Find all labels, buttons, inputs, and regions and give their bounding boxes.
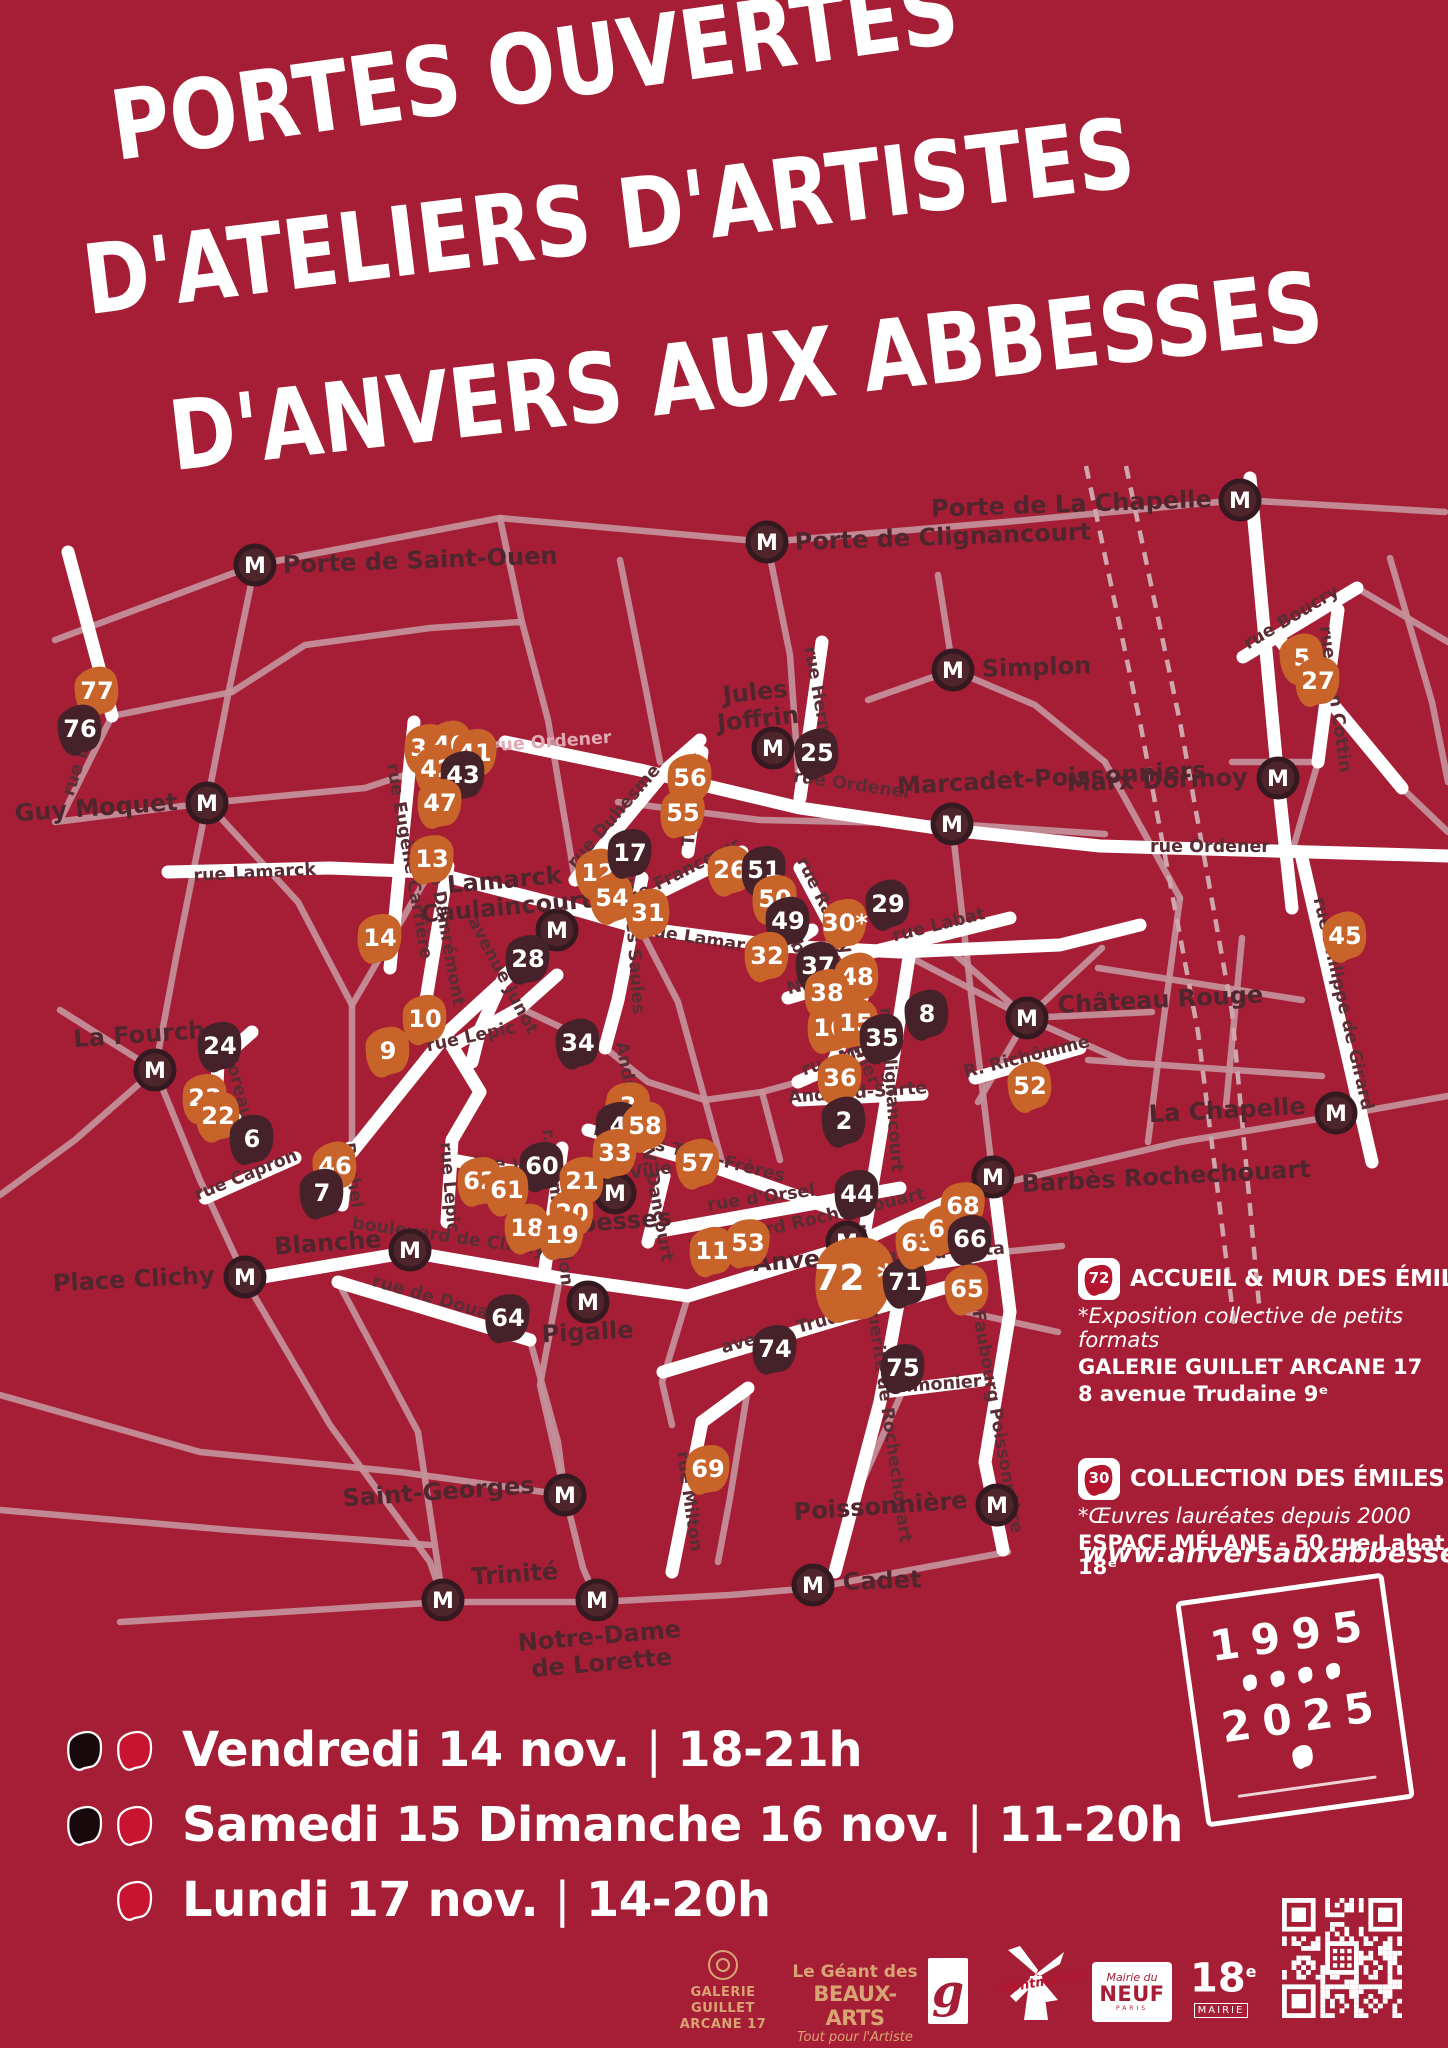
street-minor	[640, 928, 705, 1100]
metro-m: M	[577, 1291, 599, 1316]
metro-m: M	[604, 1182, 626, 1207]
mairie18-number: 18	[1190, 1955, 1246, 2001]
svg-text:31: 31	[631, 899, 664, 927]
metro-m: M	[1229, 489, 1251, 514]
galerie-line2: GUILLET	[668, 2001, 778, 2017]
galerie-emblem-icon	[708, 1950, 738, 1980]
svg-text:8: 8	[919, 1000, 936, 1028]
metro-la-fourche: M	[136, 1051, 174, 1089]
metro-trinit-: M	[424, 1581, 462, 1619]
metro-m: M	[941, 813, 963, 838]
street-minor	[953, 670, 1105, 762]
metro-label: Marx Dormoy	[1066, 763, 1248, 797]
qr-code[interactable]	[1282, 1898, 1402, 2018]
map-marker-9: 9	[364, 1026, 410, 1079]
svg-text:56: 56	[673, 764, 706, 792]
metro-guy-moquet: M	[188, 784, 226, 822]
black-heart-icon	[64, 1801, 106, 1849]
svg-text:69: 69	[691, 1455, 724, 1483]
metro-m: M	[546, 919, 568, 944]
geant-g-icon: g	[928, 1958, 968, 2024]
metro-m: M	[244, 554, 266, 579]
metro-label: Pigalle	[541, 1316, 634, 1349]
metro-jules-joffrin: M	[754, 729, 792, 767]
svg-text:74: 74	[758, 1335, 791, 1363]
metro-m: M	[586, 1589, 608, 1614]
metro-label: Barbès Rochechouart	[1021, 1155, 1311, 1198]
red-heart-icon	[1295, 1663, 1316, 1686]
metro-m: M	[196, 792, 218, 817]
metro-m: M	[1016, 1007, 1038, 1032]
svg-text:30: 30	[1089, 1469, 1110, 1487]
metro-porte-de-la-chapelle: M	[1221, 481, 1259, 519]
poster: PORTES OUVERTES D'ATELIERS D'ARTISTES D'…	[0, 0, 1448, 2048]
logo-moulin-montmartre: Montmartre	[996, 1944, 1076, 2028]
metro-label: Poissonnière	[793, 1486, 969, 1526]
street-minor	[952, 824, 993, 1178]
logo-mairie-18e: 18e MAIRIE	[1190, 1952, 1252, 2018]
logo-geant-beaux-arts: Le Géant des BEAUX-ARTS Tout pour l'Arti…	[790, 1962, 920, 2045]
street-minor	[338, 1282, 443, 1600]
metro-simplon: M	[934, 651, 972, 689]
neuf-small: PARIS	[1116, 2005, 1148, 2012]
logo-galerie-guillet: GALERIE GUILLET ARCANE 17	[668, 1950, 778, 2033]
red-heart-icon	[1323, 1659, 1344, 1682]
metro-m: M	[399, 1239, 421, 1264]
svg-text:28: 28	[511, 945, 544, 973]
legend-accueil-line1: GALERIE GUILLET ARCANE 17	[1078, 1355, 1446, 1379]
red-heart-icon	[114, 1876, 156, 1924]
street-minor	[1402, 788, 1448, 832]
geant-line3: Tout pour l'Artiste	[790, 2030, 920, 2045]
street-minor	[620, 560, 660, 762]
svg-text:49: 49	[771, 907, 804, 935]
metro-la-chapelle: M	[1317, 1094, 1355, 1132]
svg-text:10: 10	[408, 1005, 441, 1033]
metro-label: Porte de La Chapelle	[931, 485, 1213, 523]
svg-text:13: 13	[415, 845, 448, 873]
street-label: rue Lamarck	[193, 860, 317, 886]
legend: 72 ACCUEIL & MUR DES ÉMILES *Exposition …	[1078, 1258, 1446, 1631]
svg-text:30*: 30*	[822, 909, 868, 937]
metro-place-clichy: M	[226, 1258, 264, 1296]
metro-label: Place Clichy	[52, 1261, 215, 1297]
legend-collection-marker-icon: 30	[1078, 1458, 1120, 1500]
svg-text:9: 9	[380, 1037, 397, 1065]
svg-text:19: 19	[545, 1221, 578, 1249]
metro-m: M	[554, 1484, 576, 1509]
metro-porte-de-clignancourt: M	[748, 523, 786, 561]
metro-label: Trinité	[470, 1557, 559, 1591]
neuf-big: NEUF	[1099, 1983, 1164, 2005]
street-minor	[0, 1070, 155, 1195]
legend-accueil-marker-icon: 72	[1078, 1258, 1120, 1300]
svg-text:57: 57	[681, 1149, 714, 1177]
metro-ch-teau-rouge: M	[1008, 999, 1046, 1037]
mairie18-label: MAIRIE	[1194, 2003, 1249, 2018]
red-heart-icon	[1240, 1671, 1261, 1694]
metro-m: M	[1325, 1102, 1347, 1127]
svg-text:61: 61	[490, 1176, 523, 1204]
svg-text:35: 35	[865, 1024, 898, 1052]
svg-text:27: 27	[1301, 667, 1334, 695]
svg-text:58: 58	[628, 1112, 661, 1140]
metro-m: M	[762, 737, 784, 762]
svg-text:76: 76	[63, 715, 96, 743]
svg-text:55: 55	[666, 799, 699, 827]
schedule-text: Samedi 15 Dimanche 16 nov.|11-20h	[182, 1797, 1183, 1853]
metro-m: M	[144, 1059, 166, 1084]
legend-accueil-title: ACCUEIL & MUR DES ÉMILES	[1130, 1266, 1448, 1292]
svg-text:47: 47	[423, 789, 456, 817]
street-label: rue Ordener	[1150, 837, 1270, 857]
svg-text:53: 53	[731, 1229, 764, 1257]
metro-m: M	[432, 1589, 454, 1614]
svg-text:6: 6	[244, 1125, 261, 1153]
svg-text:7: 7	[314, 1179, 331, 1207]
metro-cadet: M	[794, 1566, 832, 1604]
svg-text:32: 32	[750, 942, 783, 970]
metro-marx-dormoy: M	[1259, 759, 1297, 797]
legend-accueil-line2: 8 avenue Trudaine 9ᵉ	[1078, 1382, 1446, 1406]
svg-text:29: 29	[871, 890, 904, 918]
geant-line2: BEAUX-ARTS	[790, 1982, 920, 2030]
svg-text:60: 60	[525, 1152, 558, 1180]
red-heart-icon	[114, 1726, 156, 1774]
metro-porte-de-saint-ouen: M	[236, 546, 274, 584]
stamp-year-1995: 1995	[1195, 1600, 1377, 1673]
red-heart-icon	[1268, 1667, 1289, 1690]
stamp-heart-icon	[1288, 1740, 1318, 1777]
svg-text:65: 65	[950, 1275, 983, 1303]
svg-text:52: 52	[1013, 1072, 1046, 1100]
schedule-row-1: Vendredi 14 nov.|18-21h	[56, 1718, 1183, 1782]
svg-text:54: 54	[595, 884, 628, 912]
anniversary-stamp: 1995 2025	[1175, 1572, 1415, 1827]
schedule-row-3: Lundi 17 nov.|14-20h	[56, 1868, 1183, 1932]
street-minor	[232, 622, 520, 692]
svg-text:17: 17	[613, 839, 646, 867]
metro-marcadet-poissonniers: M	[933, 805, 971, 843]
street-minor	[0, 1510, 430, 1545]
metro-m: M	[802, 1574, 824, 1599]
svg-text:72: 72	[1089, 1269, 1110, 1287]
map-marker-32: 32	[744, 932, 789, 983]
svg-text:2: 2	[836, 1107, 853, 1135]
galerie-line1: GALERIE	[668, 1985, 778, 2001]
svg-text:24: 24	[203, 1032, 236, 1060]
map-marker-30: 30*	[822, 898, 869, 950]
street-minor	[112, 692, 232, 716]
metro-label: Simplon	[981, 651, 1091, 683]
metro-notre-dame-de-lorette: M	[578, 1581, 616, 1619]
street-minor	[1390, 558, 1448, 782]
metro-m: M	[942, 659, 964, 684]
website-url[interactable]: www.anversauxabbesses.fr	[1082, 1538, 1448, 1569]
map-marker-17: 17	[607, 828, 652, 880]
svg-text:44: 44	[840, 1180, 873, 1208]
street-minor	[245, 1280, 443, 1600]
legend-collection-subtitle: *Œuvres lauréates depuis 2000	[1078, 1504, 1446, 1528]
metro-label: Porte de Saint-Ouen	[282, 541, 558, 579]
red-heart-icon	[114, 1801, 156, 1849]
stamp-caption-line	[1238, 1775, 1377, 1797]
svg-text:11: 11	[695, 1237, 728, 1265]
metro-label: Guy Moquet	[14, 788, 179, 827]
logo-mairie-du-neuf: Mairie du NEUF PARIS	[1092, 1962, 1172, 2022]
metro-blanche: M	[391, 1231, 429, 1269]
metro-label: Cadet	[842, 1565, 922, 1596]
legend-accueil: 72 ACCUEIL & MUR DES ÉMILES *Exposition …	[1078, 1258, 1446, 1406]
metro-m: M	[986, 1494, 1008, 1519]
legend-accueil-subtitle: *Exposition collective de petits formats	[1078, 1304, 1446, 1352]
svg-text:75: 75	[886, 1354, 919, 1382]
metro-m: M	[756, 531, 778, 556]
svg-text:77: 77	[80, 677, 113, 705]
svg-text:22: 22	[201, 1102, 234, 1130]
svg-text:66: 66	[953, 1225, 986, 1253]
black-heart-icon	[64, 1726, 106, 1774]
schedule: Vendredi 14 nov.|18-21hSamedi 15 Dimanch…	[56, 1718, 1183, 1943]
svg-text:33: 33	[598, 1139, 631, 1167]
svg-text:36: 36	[823, 1064, 856, 1092]
map-marker-7: 7	[299, 1168, 344, 1220]
svg-text:14: 14	[363, 924, 396, 952]
svg-text:71: 71	[888, 1268, 921, 1296]
map-marker-47: 47	[417, 778, 462, 830]
schedule-row-2: Samedi 15 Dimanche 16 nov.|11-20h	[56, 1793, 1183, 1857]
galerie-line3: ARCANE 17	[668, 2017, 778, 2033]
metro-m: M	[982, 1166, 1004, 1191]
svg-text:45: 45	[1328, 922, 1361, 950]
metro-saint-georges: M	[546, 1476, 584, 1514]
geant-line1: Le Géant des	[790, 1962, 920, 1982]
schedule-text: Lundi 17 nov.|14-20h	[182, 1872, 771, 1928]
svg-text:18: 18	[510, 1214, 543, 1242]
schedule-text: Vendredi 14 nov.|18-21h	[182, 1722, 862, 1778]
metro-m: M	[1267, 767, 1289, 792]
metro-label: Porte de Clignancourt	[794, 518, 1091, 556]
street-minor	[500, 518, 575, 880]
map-marker-8: 8	[903, 988, 951, 1042]
metro-pigalle: M	[569, 1283, 607, 1321]
svg-text:38: 38	[810, 979, 843, 1007]
street-minor	[762, 1092, 780, 1160]
metro-poissonni-re: M	[978, 1486, 1016, 1524]
metro-m: M	[234, 1266, 256, 1291]
legend-collection-title: COLLECTION DES ÉMILES	[1130, 1466, 1444, 1492]
svg-text:64: 64	[491, 1304, 524, 1332]
red-heart-icon	[1288, 1740, 1318, 1773]
svg-text:25: 25	[800, 739, 833, 767]
street-label: rue Ordener	[491, 728, 612, 756]
street-minor	[1002, 1246, 1062, 1252]
svg-text:34: 34	[561, 1029, 594, 1057]
